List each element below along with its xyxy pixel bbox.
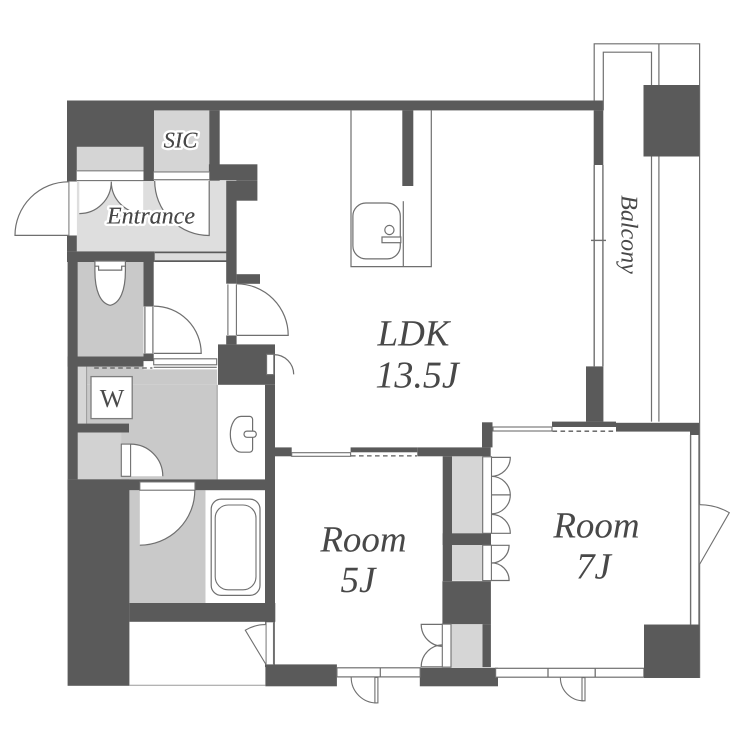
svg-text:SIC: SIC	[164, 128, 199, 153]
svg-text:5J: 5J	[341, 560, 378, 601]
svg-text:Room: Room	[319, 520, 406, 561]
svg-text:7J: 7J	[576, 547, 613, 588]
svg-text:Room: Room	[552, 506, 639, 547]
svg-text:LDK: LDK	[377, 314, 452, 355]
svg-text:13.5J: 13.5J	[375, 355, 461, 397]
svg-text:Entrance: Entrance	[106, 204, 195, 230]
svg-text:Balcony: Balcony	[616, 195, 642, 274]
svg-text:W: W	[100, 384, 125, 413]
